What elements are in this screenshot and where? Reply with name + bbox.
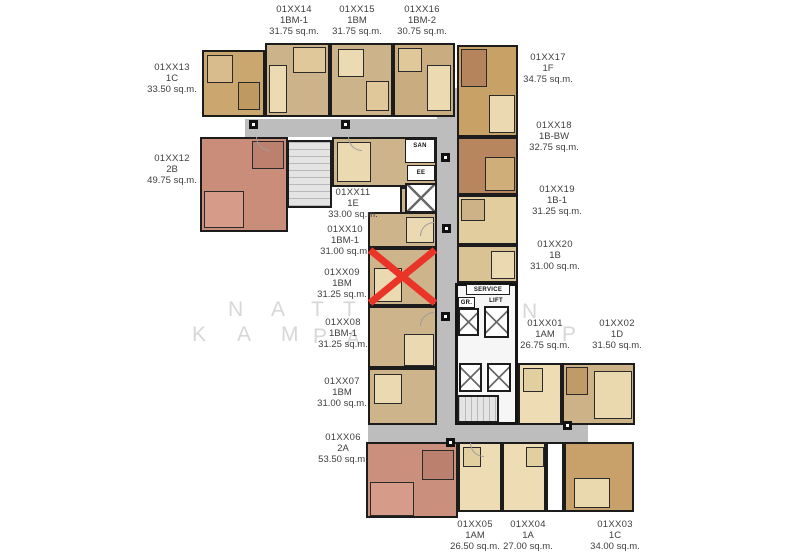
- stairwell-core: [457, 395, 499, 423]
- door-marker: [563, 421, 572, 430]
- unit-label-01XX07: 01XX071BM31.00 sq.m.: [302, 376, 382, 409]
- floor-plan: NATTNKAMPAP: [0, 0, 800, 560]
- unit-block-01XX15[interactable]: [330, 43, 393, 117]
- corridor-top: [245, 119, 455, 137]
- lift-label: LIFT: [486, 297, 506, 306]
- unit-block-01XX04[interactable]: [502, 442, 546, 512]
- door-marker: [442, 224, 451, 233]
- unit-label-01XX13: 01XX131C33.50 sq.m.: [132, 62, 212, 95]
- lift-3: [459, 363, 482, 392]
- unit-label-01XX18: 01XX181B-BW32.75 sq.m.: [514, 120, 594, 153]
- shaft-block: [546, 442, 564, 512]
- gr-label: GR.: [458, 297, 475, 308]
- unit-label-01XX06: 01XX062A53.50 sq.m.: [303, 432, 383, 465]
- ee-room: EE: [407, 165, 435, 181]
- unit-label-01XX02: 01XX021D31.50 sq.m.: [577, 318, 657, 351]
- lift-4: [487, 363, 511, 392]
- door-marker: [341, 120, 350, 129]
- watermark-letter: N: [228, 298, 243, 322]
- door-marker: [441, 312, 450, 321]
- watermark-letter: A: [237, 323, 251, 347]
- unit-label-01XX16: 01XX161BM-230.75 sq.m.: [382, 4, 462, 37]
- unit-label-01XX03: 01XX031C34.00 sq.m.: [575, 519, 655, 552]
- unit-label-01XX20: 01XX201B31.00 sq.m.: [515, 239, 595, 272]
- unit-label-01XX19: 01XX191B-131.25 sq.m.: [517, 184, 597, 217]
- unit-block-01XX20[interactable]: [457, 245, 518, 283]
- unit-label-01XX12: 01XX122B49.75 sq.m.: [132, 153, 212, 186]
- unit-label-01XX04: 01XX041A27.00 sq.m.: [488, 519, 568, 552]
- service-label: SERVICE: [466, 284, 510, 295]
- unit-label-01XX17: 01XX171F34.75 sq.m.: [508, 52, 588, 85]
- san-room: SAN: [405, 139, 435, 163]
- shaft-box: [405, 183, 437, 213]
- corridor-spine: [437, 88, 457, 428]
- unit-block-01XX02[interactable]: [562, 363, 635, 425]
- sold-x-marker: [366, 246, 439, 307]
- unit-block-01XX16[interactable]: [393, 43, 455, 117]
- unit-block-01XX12[interactable]: [200, 137, 288, 232]
- watermark-letter: M: [281, 323, 299, 347]
- unit-block-01XX14[interactable]: [265, 43, 330, 117]
- watermark-letter: K: [192, 323, 206, 347]
- lift-1: [458, 308, 479, 336]
- unit-block-01XX19[interactable]: [457, 195, 518, 245]
- door-marker: [446, 438, 455, 447]
- unit-block-01XX03[interactable]: [564, 442, 634, 512]
- corridor-bottom: [368, 425, 588, 442]
- unit-label-01XX08: 01XX081BM-131.25 sq.m.: [303, 317, 383, 350]
- unit-block-01XX01[interactable]: [518, 363, 562, 425]
- unit-block-01XX18[interactable]: [457, 137, 518, 195]
- unit-label-01XX11: 01XX111E33.00 sq.m.: [313, 187, 393, 220]
- unit-label-01XX01: 01XX011AM26.75 sq.m.: [505, 318, 585, 351]
- door-marker: [249, 120, 258, 129]
- watermark-letter: A: [271, 298, 285, 322]
- door-marker: [441, 153, 450, 162]
